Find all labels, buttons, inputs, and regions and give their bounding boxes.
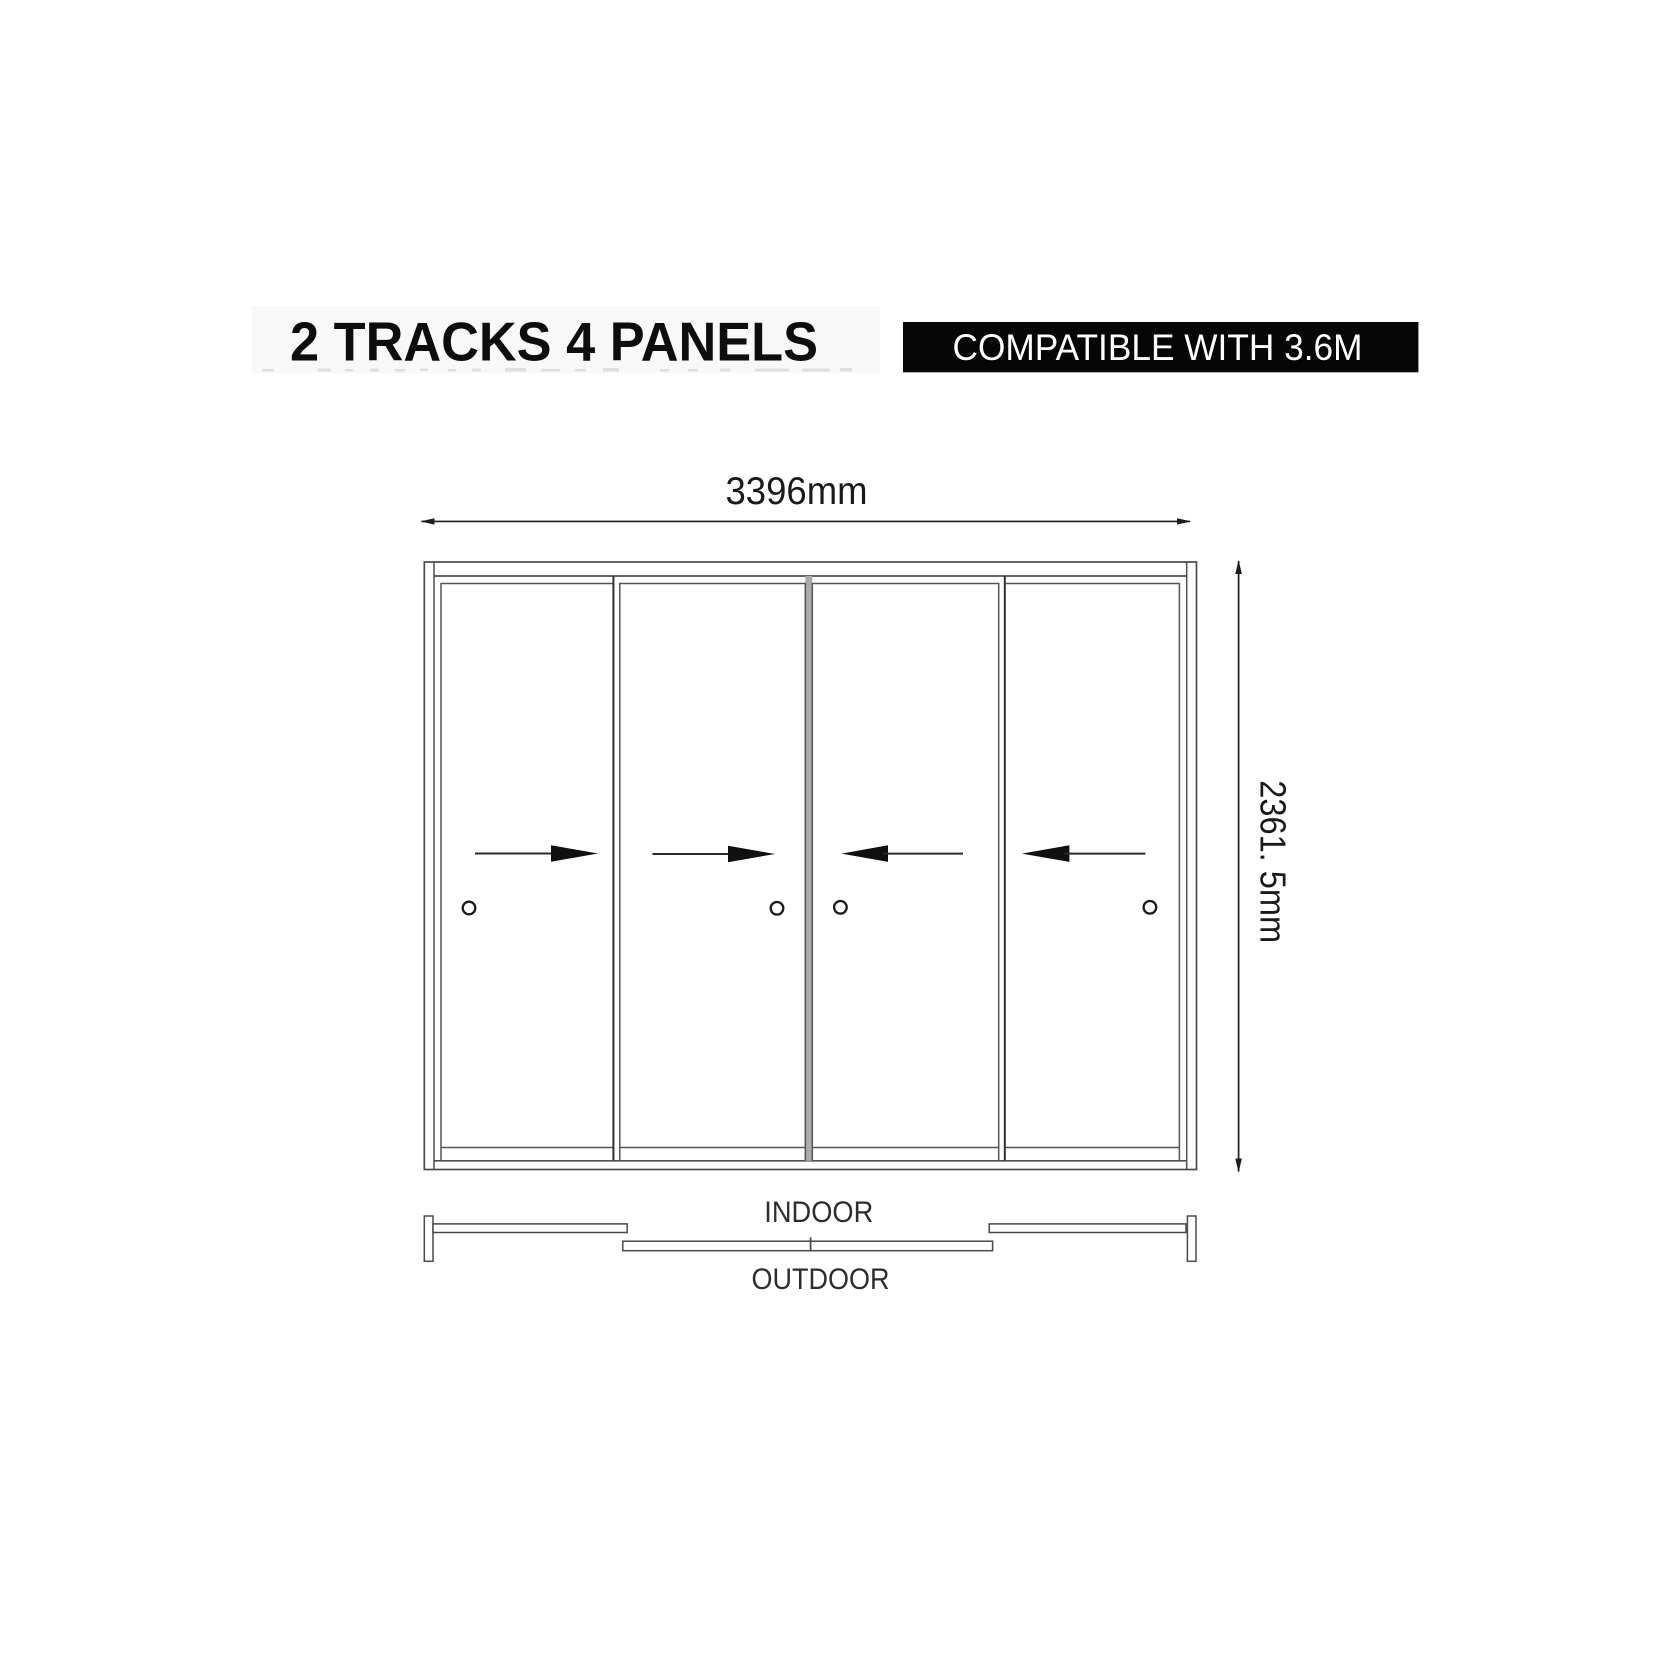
- svg-text:OUTDOOR: OUTDOOR: [752, 1263, 890, 1296]
- svg-text:INDOOR: INDOOR: [764, 1196, 873, 1229]
- svg-text:2361. 5mm: 2361. 5mm: [1253, 780, 1294, 943]
- svg-text:3396mm: 3396mm: [726, 470, 868, 513]
- svg-text:2 TRACKS 4 PANELS: 2 TRACKS 4 PANELS: [290, 312, 818, 373]
- svg-text:COMPATIBLE WITH 3.6M: COMPATIBLE WITH 3.6M: [953, 326, 1363, 368]
